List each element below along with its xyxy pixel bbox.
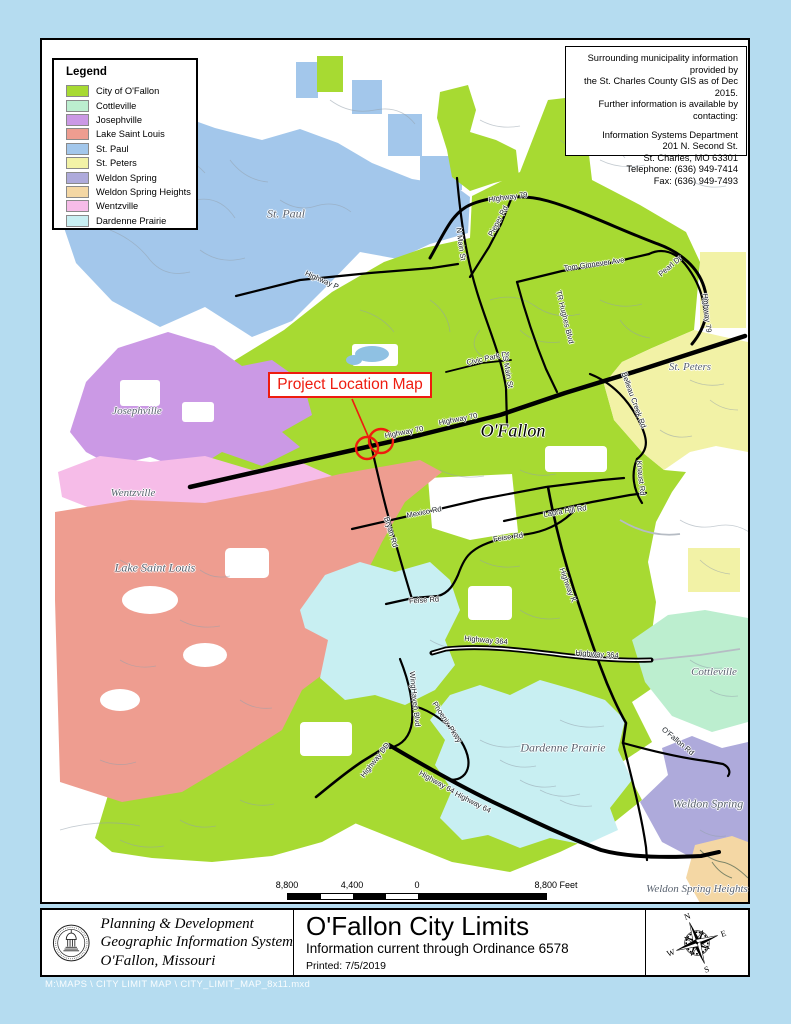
legend-item-label: Josephville	[96, 115, 142, 125]
legend-item-label: St. Paul	[96, 144, 129, 154]
legend-item: St. Peters	[66, 156, 196, 170]
legend-swatch	[66, 85, 89, 97]
legend-item-label: Lake Saint Louis	[96, 129, 165, 139]
banner-org-section: Planning & Development Geographic Inform…	[42, 910, 294, 975]
legend-swatch	[66, 186, 89, 198]
map-printed-date: Printed: 7/5/2019	[306, 960, 645, 972]
legend-items: City of O'FallonCottlevilleJosephvilleLa…	[66, 84, 196, 228]
legend-swatch	[66, 114, 89, 126]
title-banner: Planning & Development Geographic Inform…	[40, 908, 750, 977]
info-box-note: Surrounding municipality information pro…	[566, 53, 738, 123]
org-text: Planning & Development Geographic Inform…	[101, 915, 293, 971]
legend-item-label: City of O'Fallon	[96, 86, 159, 96]
info-contact-line: 201 N. Second St.	[566, 141, 738, 153]
legend-item: Lake Saint Louis	[66, 127, 196, 141]
legend-item: Cottleville	[66, 98, 196, 112]
legend-item-label: St. Peters	[96, 158, 137, 168]
legend-item-label: Cottleville	[96, 101, 136, 111]
file-path: M:\MAPS \ CITY LIMIT MAP \ CITY_LIMIT_MA…	[45, 979, 310, 990]
info-note-line: the St. Charles County GIS as of Dec 201…	[566, 76, 738, 99]
legend-item: Josephville	[66, 113, 196, 127]
legend-swatch	[66, 143, 89, 155]
legend-box: Legend City of O'FallonCottlevilleJoseph…	[52, 58, 198, 230]
scalebar-label-zero: 0	[414, 880, 419, 890]
scalebar-label-right: 8,800 Feet	[534, 880, 577, 890]
info-box-contact: Information Systems Department201 N. Sec…	[566, 130, 738, 188]
legend-swatch	[66, 100, 89, 112]
legend-item: Weldon Spring Heights	[66, 185, 196, 199]
scalebar-graphic	[287, 893, 547, 900]
info-note-line: Surrounding municipality information pro…	[566, 53, 738, 76]
map-title: O'Fallon City Limits	[306, 912, 645, 940]
compass-rose-icon: N E S W	[660, 911, 734, 975]
info-contact-line: Fax: (636) 949-7493	[566, 176, 738, 188]
org-line-3: O'Fallon, Missouri	[101, 952, 293, 971]
org-line-1: Planning & Development	[101, 915, 293, 934]
legend-swatch	[66, 172, 89, 184]
compass-e-label: E	[719, 927, 727, 938]
legend-item: Wentzville	[66, 199, 196, 213]
banner-compass-section: N E S W	[646, 910, 748, 975]
legend-item: St. Paul	[66, 142, 196, 156]
legend-swatch	[66, 157, 89, 169]
legend-item: City of O'Fallon	[66, 84, 196, 98]
legend-item: Dardenne Prairie	[66, 214, 196, 228]
legend-item-label: Wentzville	[96, 201, 138, 211]
map-subtitle: Information current through Ordinance 65…	[306, 941, 645, 956]
city-seal-icon	[52, 916, 91, 970]
info-contact-line: Information Systems Department	[566, 130, 738, 142]
legend-swatch	[66, 200, 89, 212]
legend-item-label: Weldon Spring	[96, 173, 157, 183]
project-location-callout: Project Location Map	[268, 372, 432, 398]
compass-w-label: W	[665, 946, 676, 958]
org-line-2: Geographic Information System	[101, 933, 293, 952]
legend-swatch	[66, 128, 89, 140]
info-box-gap	[566, 123, 738, 130]
compass-n-label: N	[683, 911, 692, 922]
legend-item-label: Weldon Spring Heights	[96, 187, 191, 197]
map-document-page: St. PaulJosephvilleWentzvilleLake Saint …	[0, 0, 791, 1024]
legend-swatch	[66, 215, 89, 227]
legend-title: Legend	[66, 66, 196, 78]
info-note-line: Further information is available by cont…	[566, 99, 738, 122]
scalebar-label-mid: 4,400	[341, 880, 364, 890]
compass-s-label: S	[703, 963, 711, 974]
info-contact-line: St. Charles, MO 63301	[566, 153, 738, 165]
banner-title-section: O'Fallon City Limits Information current…	[294, 910, 646, 975]
info-contact-line: Telephone: (636) 949-7414	[566, 164, 738, 176]
scalebar-label-left: 8,800	[276, 880, 299, 890]
info-box: Surrounding municipality information pro…	[565, 46, 747, 156]
legend-item-label: Dardenne Prairie	[96, 216, 166, 226]
legend-item: Weldon Spring	[66, 170, 196, 184]
